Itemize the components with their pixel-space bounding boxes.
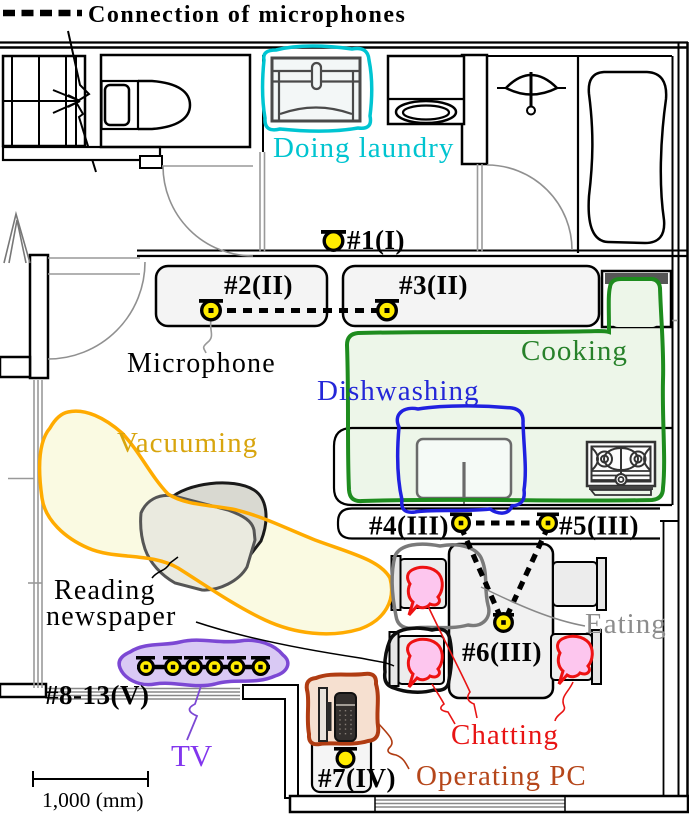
svg-text:Microphone: Microphone bbox=[127, 348, 276, 379]
svg-text:newspaper: newspaper bbox=[46, 601, 177, 632]
svg-text:#2(II): #2(II) bbox=[224, 270, 293, 300]
svg-text:Dishwashing: Dishwashing bbox=[317, 375, 479, 407]
svg-text:#4(III): #4(III) bbox=[369, 511, 449, 541]
svg-text:#1(I): #1(I) bbox=[347, 225, 405, 255]
svg-text:Operating PC: Operating PC bbox=[416, 760, 587, 792]
svg-text:TV: TV bbox=[171, 738, 213, 773]
svg-text:Connection of microphones: Connection of microphones bbox=[88, 2, 406, 28]
svg-text:#5(III): #5(III) bbox=[559, 511, 639, 541]
svg-text:#6(III): #6(III) bbox=[462, 637, 542, 667]
svg-text:#3(II): #3(II) bbox=[399, 270, 468, 300]
svg-text:Eating: Eating bbox=[585, 608, 667, 640]
svg-text:Chatting: Chatting bbox=[451, 719, 559, 751]
svg-text:Cooking: Cooking bbox=[521, 335, 628, 367]
svg-text:Doing laundry: Doing laundry bbox=[273, 132, 454, 164]
svg-text:#8-13(V): #8-13(V) bbox=[45, 680, 149, 710]
svg-text:Vacuuming: Vacuuming bbox=[117, 427, 258, 459]
svg-text:#7(IV): #7(IV) bbox=[318, 763, 396, 793]
svg-text:1,000 (mm): 1,000 (mm) bbox=[42, 788, 144, 812]
